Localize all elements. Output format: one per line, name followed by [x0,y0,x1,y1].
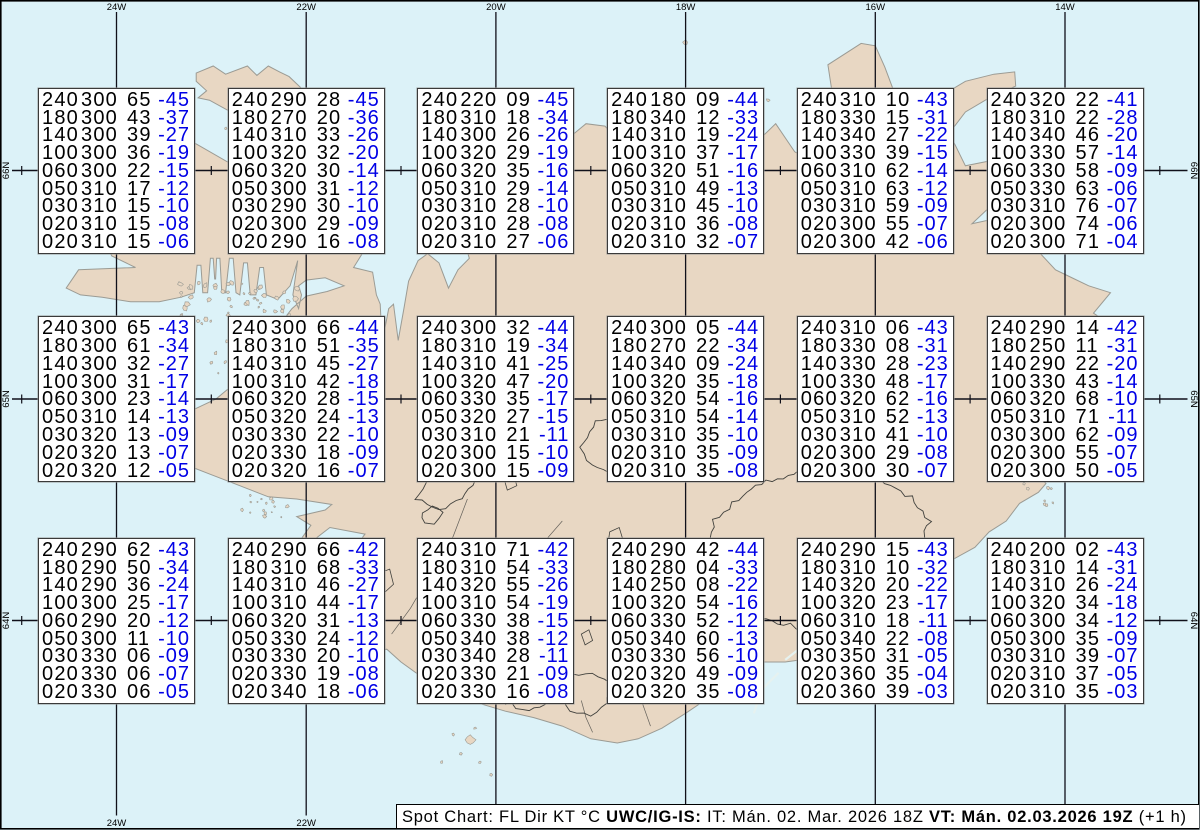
svg-text:66N: 66N [1188,162,1199,180]
svg-text:22W: 22W [296,2,316,13]
svg-text:18W: 18W [676,2,696,13]
svg-text:20W: 20W [486,2,506,13]
svg-text:24W: 24W [107,2,127,13]
svg-text:66N: 66N [1,162,12,180]
svg-text:14W: 14W [1055,2,1075,13]
svg-text:65N: 65N [1188,390,1199,408]
svg-text:16W: 16W [866,2,886,13]
svg-text:24W: 24W [107,818,127,829]
svg-text:64N: 64N [1,612,12,630]
svg-text:64N: 64N [1188,612,1199,630]
svg-text:65N: 65N [1,390,12,408]
svg-text:22W: 22W [296,818,316,829]
